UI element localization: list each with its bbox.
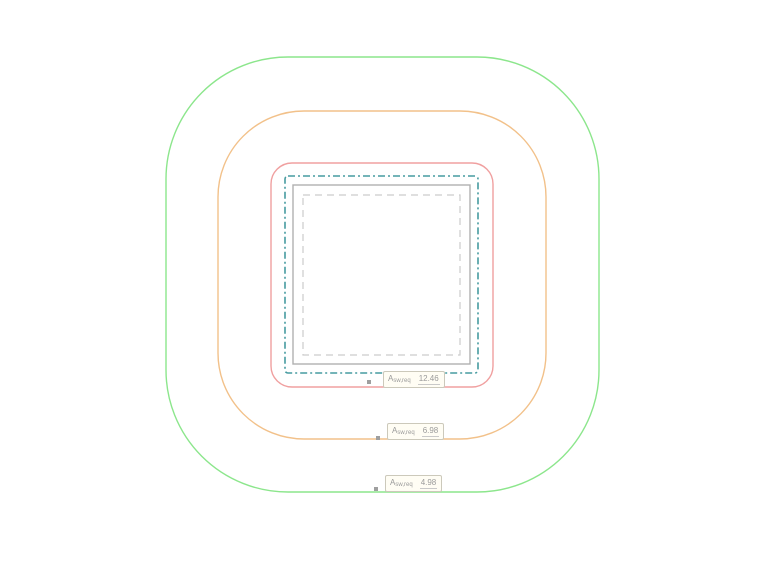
asw-req-label-orange: Asw,req 6.98 <box>387 423 444 440</box>
asw-req-label-green: Asw,req 4.98 <box>385 475 442 492</box>
asw-symbol: Asw,req <box>392 426 415 438</box>
column-outline-gray <box>293 185 470 364</box>
leader-marker-red <box>367 380 371 384</box>
asw-value: 12.46 <box>418 374 440 385</box>
punching-shear-diagram: Asw,req 12.46 Asw,req 6.98 Asw,req 4.98 <box>0 0 760 570</box>
asw-symbol: Asw,req <box>390 478 413 490</box>
asw-value: 6.98 <box>422 426 440 437</box>
asw-req-label-red: Asw,req 12.46 <box>383 371 445 388</box>
middle-perimeter-orange <box>218 111 546 439</box>
leader-marker-green <box>374 487 378 491</box>
perimeter-shapes-canvas <box>0 0 760 570</box>
asw-value: 4.98 <box>420 478 438 489</box>
control-perimeter-teal <box>285 176 478 373</box>
inner-outline-dashed <box>303 195 460 355</box>
outer-perimeter-green <box>166 57 599 492</box>
asw-symbol: Asw,req <box>388 374 411 386</box>
leader-marker-orange <box>376 436 380 440</box>
